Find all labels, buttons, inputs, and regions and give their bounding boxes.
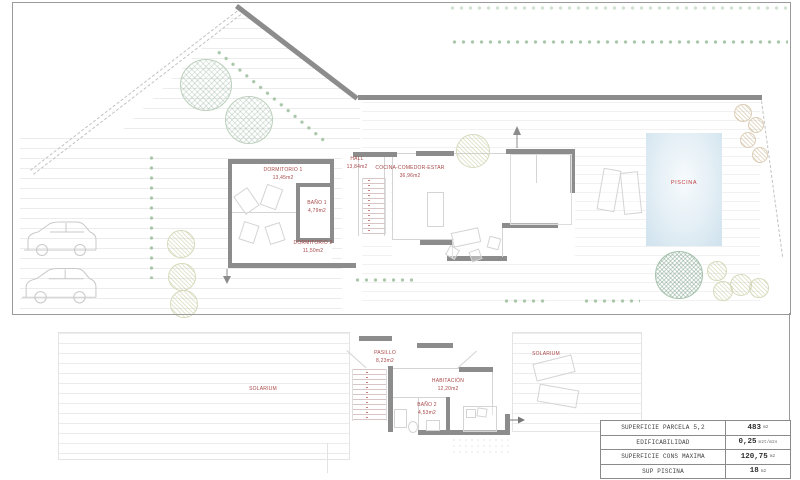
- table-row-label: EDIFICABILIDAD: [601, 436, 726, 450]
- value-number: 0,25: [739, 438, 757, 446]
- room-area: 11,50m2: [294, 248, 333, 256]
- pillow: [466, 409, 476, 418]
- table-row: SUP PISCINA 18 m2: [601, 464, 790, 479]
- table-row-value: 18 m2: [726, 465, 790, 479]
- room-name: BAÑO 2: [417, 402, 437, 410]
- room-area: 13,45m2: [264, 175, 303, 183]
- room-area: 4,79m2: [307, 208, 327, 216]
- table-row: EDIFICABILIDAD 0,25 m2t/m2s: [601, 435, 790, 450]
- toilet: [408, 421, 418, 433]
- value-number: 120,75: [741, 453, 768, 461]
- wall: [359, 336, 392, 341]
- table-row-label: SUP PISCINA: [601, 465, 726, 479]
- solarium-hatch-right: [512, 332, 642, 432]
- solarium-name: SOLARIUM: [532, 351, 560, 359]
- value-unit: m2: [770, 454, 775, 459]
- value-number: 18: [750, 467, 759, 475]
- room-name: HABITACIÓN: [432, 378, 464, 386]
- sheet-border: [12, 2, 791, 315]
- wall: [446, 397, 450, 432]
- summary-table: SUPERFICIE PARCELA 5,2 483 m2 EDIFICABIL…: [600, 420, 791, 479]
- room-name: BAÑO 1: [307, 200, 327, 208]
- exit-arrow-icon: [508, 415, 526, 425]
- room-label-habitacion: HABITACIÓN 12,20m2: [432, 378, 464, 393]
- room-name: DORMITORIO 2: [294, 240, 333, 248]
- partition-line: [393, 397, 446, 398]
- table-row-value: 0,25 m2t/m2s: [726, 436, 790, 450]
- solarium-hatch-left: [58, 332, 350, 460]
- wall: [388, 366, 393, 432]
- table-row-value: 120,75 m2: [726, 450, 790, 464]
- solarium-label-left: SOLARIUM: [249, 386, 277, 394]
- table-row: SUPERFICIE PARCELA 5,2 483 m2: [601, 421, 790, 435]
- room-label-bano2: BAÑO 2 4,53m2: [417, 402, 437, 417]
- table-row-value: 483 m2: [726, 421, 790, 435]
- shower: [394, 409, 407, 428]
- pool-label: PISCINA: [671, 180, 697, 186]
- room-name: HALL: [347, 156, 368, 164]
- value-unit: m2: [763, 425, 768, 430]
- room-label-dormitorio1: DORMITORIO 1 13,45m2: [264, 167, 303, 182]
- room-area: 36,96m2: [375, 173, 444, 181]
- room-label-cocina: COCINA-COMEDOR-ESTAR 36,96m2: [375, 165, 444, 180]
- wall: [417, 343, 453, 348]
- room-area: 13,84m2: [347, 164, 368, 172]
- table-row-label: SUPERFICIE PARCELA 5,2: [601, 421, 726, 435]
- solarium-name: SOLARIUM: [249, 386, 277, 394]
- room-area: 8,23m2: [374, 358, 396, 366]
- room-area: 12,20m2: [432, 386, 464, 394]
- room-label-bano1: BAÑO 1 4,79m2: [307, 200, 327, 215]
- room-label-pasillo: PASILLO 8,23m2: [374, 350, 396, 365]
- wall: [459, 367, 493, 372]
- room-name: COCINA-COMEDOR-ESTAR: [375, 165, 444, 173]
- room-name: DORMITORIO 1: [264, 167, 303, 175]
- value-number: 483: [748, 424, 762, 432]
- reference-line: [327, 443, 328, 473]
- plan-sheet: PISCINA: [0, 0, 800, 480]
- solarium-label-right: SOLARIUM: [532, 351, 560, 359]
- stairs-ticks: [366, 372, 368, 418]
- room-name: PASILLO: [374, 350, 396, 358]
- room-label-dormitorio2: DORMITORIO 2 11,50m2: [294, 240, 333, 255]
- room-label-hall: HALL 13,84m2: [347, 156, 368, 171]
- value-unit: m2: [761, 469, 766, 474]
- pillow: [476, 407, 487, 417]
- table-row: SUPERFICIE CONS MAXIMA 120,75 m2: [601, 449, 790, 464]
- stairs: [352, 369, 387, 421]
- pergola-grid: [452, 438, 510, 453]
- table-row-label: SUPERFICIE CONS MAXIMA: [601, 450, 726, 464]
- partition-line: [393, 368, 459, 369]
- value-unit: m2t/m2s: [759, 440, 778, 445]
- sink: [426, 420, 440, 431]
- room-area: 4,53m2: [417, 410, 437, 418]
